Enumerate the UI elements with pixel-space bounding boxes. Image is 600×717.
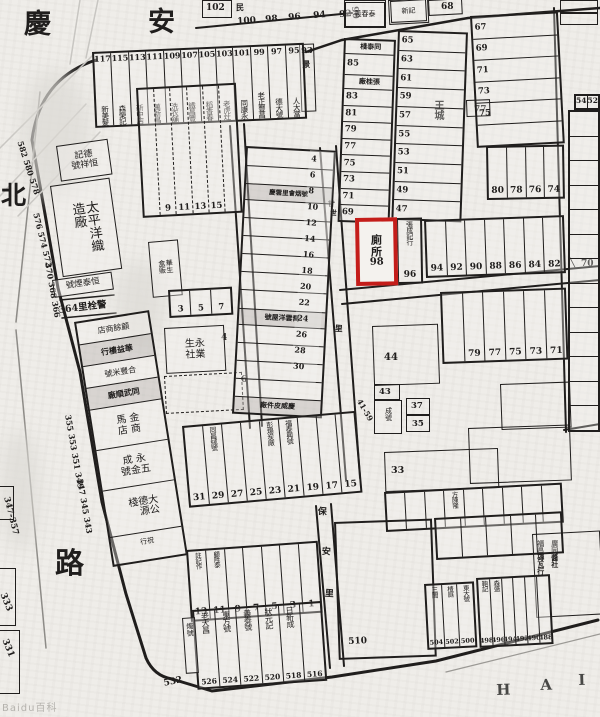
lot-cell: 78 xyxy=(506,147,526,197)
lot-cell: 97 xyxy=(271,47,283,56)
lot-cell: 83 xyxy=(344,88,393,106)
lot-cell: 516 xyxy=(299,603,325,680)
lot-37-box xyxy=(406,398,430,415)
top-lot-smudge: 新記 xyxy=(390,0,427,23)
lane-label-ganshili: 里 xyxy=(334,324,343,333)
lot-cell: 25 xyxy=(250,488,263,499)
lot-cell: 新美髮 xyxy=(101,105,109,125)
shop-name: 華生盒販 xyxy=(157,259,173,278)
lot-cell: 29 xyxy=(212,492,225,503)
lot-cell: 張成記行 xyxy=(406,221,413,245)
lot-cell xyxy=(485,516,512,555)
lot-cell: 79 xyxy=(468,350,481,360)
lot-cell: 92 xyxy=(450,264,463,274)
lot-cell: 7 xyxy=(210,289,232,314)
lot-cell: 74 xyxy=(548,186,561,196)
lot-cell: 103 xyxy=(216,49,233,59)
lot-number: 30 xyxy=(293,361,305,371)
lot-cell: 9 xyxy=(165,204,171,214)
lot-cell: 85 xyxy=(345,53,394,76)
lot-43-box xyxy=(374,384,400,400)
lot-cell: 76 xyxy=(529,186,542,196)
lot-cell xyxy=(570,381,598,406)
lot-cell: 人大當 xyxy=(292,96,300,116)
lot-cell: 方陳隆 xyxy=(450,491,457,508)
lot-number: 26 xyxy=(296,329,308,339)
lane-label-364li: 364里栓警 xyxy=(58,300,107,316)
toilet-lot-number: 98 xyxy=(370,258,384,269)
lot-number: 51 xyxy=(397,167,409,177)
lot-cell xyxy=(570,258,598,283)
lot-number: 49 xyxy=(396,186,408,196)
lot-cell: 526 xyxy=(201,677,217,686)
lot-510-block xyxy=(334,519,437,660)
lot-cell: 53 xyxy=(395,143,462,164)
lot-number: 20 xyxy=(300,281,312,291)
lot-number: 75 xyxy=(343,159,355,169)
lot-cell: 3 xyxy=(178,305,184,315)
lot-cell: 德大號 xyxy=(275,97,283,117)
lot-cell: 彭煬炭廠 xyxy=(265,421,274,446)
street-label-an: 安 xyxy=(148,8,175,38)
lot-number: 57 xyxy=(399,111,411,121)
lot-number: 53 xyxy=(398,148,410,158)
shop-hengtai-tobacco: 號煙泰恒 xyxy=(52,272,114,298)
ne-open-lot xyxy=(500,382,572,430)
lot-number: 81 xyxy=(345,109,357,119)
lot-cell: 76 xyxy=(525,147,545,197)
scanned-block-map: 慶安北路HAI582 580 578576 574 572370 368 366… xyxy=(0,0,600,717)
lot-cell: 101 xyxy=(233,48,250,58)
lot-number: 10 xyxy=(307,202,319,212)
lot-cell: 88 xyxy=(489,262,502,272)
lot-number: 79 xyxy=(345,125,357,135)
lot-cell xyxy=(460,517,487,556)
lot-number: 77 xyxy=(344,142,356,152)
lot-cell: 同昌絨號 xyxy=(209,426,218,451)
lot-cell: 63 xyxy=(399,50,466,71)
lot-glyph: 民 xyxy=(236,3,244,12)
lot-cell: 82 xyxy=(542,217,563,272)
lot-row-526-516: 老大昌526東方號524義泰號522狀元記520日新成518516 xyxy=(192,601,327,690)
lot-row-31-15: 31同昌絨號292725彭煬炭廠23福泰興號21191715 xyxy=(182,411,362,508)
lot-cell: 森榮記 xyxy=(118,104,126,124)
shop-name: 義春泰 xyxy=(355,10,376,18)
lot-cell: 496 xyxy=(492,636,505,644)
watermark: Baidu百科 xyxy=(2,699,57,714)
lot-number: 102 xyxy=(206,4,225,14)
lot-cell xyxy=(478,120,563,146)
lot-cell: 79 xyxy=(462,293,485,362)
lot-cell: 94 xyxy=(431,264,444,274)
lot-cell: 73 xyxy=(341,171,390,189)
lot-cell xyxy=(570,136,598,161)
lot-cell: 21 xyxy=(287,485,300,496)
lot-number: 67 xyxy=(474,23,486,33)
lot-cell xyxy=(570,209,598,234)
lot-cell: 75 xyxy=(503,291,526,360)
lot-number: 8 xyxy=(308,186,314,195)
lot-cell: 51 xyxy=(395,162,462,183)
lot-44-box xyxy=(372,324,440,386)
lot-cell: 張成記行96 xyxy=(398,220,421,282)
street-numbers: 347 345 343 xyxy=(75,478,93,534)
lot-row-504-500: 三閭504楂庭502東大號500 xyxy=(424,581,477,650)
lot-col-85-69: 棧泰同85廠桂張8381797775737169 xyxy=(338,38,396,224)
lot-cell: 17 xyxy=(325,482,338,493)
street-letter-i: I xyxy=(578,672,586,689)
lot-cell: 95 xyxy=(288,46,300,55)
lot-row-94-82: 94929088868482 xyxy=(424,215,566,278)
lot-number: 6 xyxy=(310,170,316,179)
shop-pacific-weaving: 太平洋織造廠 xyxy=(50,178,122,277)
lot-number: 69 xyxy=(476,44,488,54)
lane-label-baoanli: 安 xyxy=(321,548,331,558)
lot-cell: 老正豐昌 xyxy=(257,92,266,118)
lot-cell xyxy=(570,332,598,357)
lot-number: 71 xyxy=(342,192,354,202)
lot-cell: 11 xyxy=(178,203,190,213)
lot-cell xyxy=(570,283,598,308)
lot-cell: 7 xyxy=(218,303,224,313)
lot-row-498-488: 鞄記498森盛496494492490488 xyxy=(476,574,554,648)
shop-shengyong: 生永社業 xyxy=(164,325,226,374)
lot-cell: 94 xyxy=(426,221,446,276)
lot-row-9-15: 9111315 xyxy=(136,83,243,218)
lot-cell: 東方號 xyxy=(221,610,230,632)
lot-cell: 東大號500 xyxy=(456,583,475,646)
shop-name: 廠桂張 xyxy=(346,78,392,88)
shop-name: 店 商 xyxy=(117,423,142,438)
lot-number: 73 xyxy=(478,87,490,97)
shop-name: 號煙泰恒 xyxy=(65,278,100,292)
lot-cell: 86 xyxy=(509,262,522,272)
lot-number: 24 xyxy=(297,313,309,323)
lot-number: 16 xyxy=(303,249,315,259)
lot-number: 100 xyxy=(237,17,256,28)
east-edge-lot-col xyxy=(568,110,600,432)
lot-cell: 鞄記 xyxy=(480,580,487,591)
lot-cell: 488 xyxy=(536,576,551,643)
lot-number: 22 xyxy=(298,297,310,307)
lot-96-zhangchengji: 張成記行96 xyxy=(396,218,423,284)
shop-name: 號祥恒 xyxy=(71,158,99,172)
lot-number: 12 xyxy=(305,218,317,228)
lot-cell: 95人大當 xyxy=(285,45,306,118)
lot-col-65-47: 65636159575553514947 xyxy=(391,30,468,222)
ne-partial-lot xyxy=(560,13,598,25)
shop-name: 廠件皮威慶 xyxy=(260,402,295,412)
lot-cell: 518 xyxy=(286,671,302,680)
shop-name: 廠順武同 xyxy=(107,387,140,401)
lot-cell: 54 xyxy=(576,97,586,105)
lot-number: 71 xyxy=(477,66,489,76)
lot-number: 83 xyxy=(346,92,358,102)
shop-name: 棧泰同 xyxy=(348,43,394,53)
lot-cell: 73 xyxy=(523,290,546,359)
lot-cell: 492 xyxy=(515,635,528,643)
lot-cell: 30 xyxy=(290,357,317,375)
lot-cell: 日新成 xyxy=(285,606,294,628)
lot-35-box xyxy=(406,415,430,432)
lot-cell xyxy=(570,185,598,210)
street-letter-h: H xyxy=(496,682,511,699)
lot-row-80-74: 80787674 xyxy=(486,145,565,200)
lot-cell: 498 xyxy=(480,637,493,645)
lot-cell: 490 xyxy=(527,635,540,643)
lot-cell: 522 xyxy=(243,674,259,683)
lot-cell: 96 xyxy=(404,271,417,281)
lot-cell: 92 xyxy=(445,221,466,276)
lot-cell xyxy=(436,519,462,558)
lot-number: 47 xyxy=(396,205,408,215)
lot-number: 98 xyxy=(265,15,278,26)
lot-cell: 80 xyxy=(488,148,507,198)
lot-cell: 117 xyxy=(94,54,111,64)
lot-cell: 74 xyxy=(543,147,563,197)
lot-cell: 80 xyxy=(491,187,504,197)
lot-cell: 99 xyxy=(253,47,265,56)
lot-number: 73 xyxy=(343,175,355,185)
shop-name: 大公德源棧 xyxy=(125,493,159,523)
lot-cell: 81 xyxy=(343,105,392,123)
lane-label-baoanli: 保 xyxy=(317,508,327,518)
lot-cell: 86 xyxy=(503,219,524,274)
lot-cell: 502 xyxy=(445,638,459,646)
lot-row-3-5-7: 357 xyxy=(168,287,233,318)
lot-cell: 5 xyxy=(198,304,204,314)
lot-number: 63 xyxy=(401,55,413,65)
shop-name: 新記 xyxy=(401,7,415,16)
lot-cell: 494 xyxy=(503,636,516,644)
lot-cell: 狀元記 xyxy=(264,607,273,629)
lot-number: 61 xyxy=(400,74,412,84)
lot-cell: 三閭 xyxy=(430,586,437,597)
lot-number: 69 xyxy=(342,208,354,218)
lot-cell: 107 xyxy=(181,50,198,60)
lot-cell: 顧陞泰 xyxy=(212,551,220,568)
lot-cell: 488 xyxy=(539,634,552,642)
lot-cell: 73 xyxy=(529,348,542,358)
lot-cell: 52 xyxy=(587,96,599,108)
shop-name: 太平洋織造廠 xyxy=(69,200,103,255)
lot-cell: 同康永 xyxy=(240,99,248,119)
lot-cell: 77 xyxy=(482,292,505,361)
lane-label-baoanli: 里 xyxy=(324,590,334,600)
lot-cell xyxy=(570,405,598,430)
lot-cell: 5 xyxy=(189,290,211,315)
lot-cell xyxy=(570,160,598,185)
lot-cell xyxy=(570,112,598,136)
lot-cell xyxy=(570,307,598,332)
lot-cell: 註記作 xyxy=(194,552,202,569)
street-label-lu: 路 xyxy=(55,548,84,580)
street-numbers: 576 574 572 xyxy=(31,212,53,268)
lot-cell: 504 xyxy=(429,639,443,647)
shop-name: 行樓益華 xyxy=(100,343,133,357)
lot-number: 65 xyxy=(401,36,413,46)
lot-cell: 31 xyxy=(193,493,206,504)
lot-cell: 75 xyxy=(341,154,390,172)
lot-cell: 77 xyxy=(489,349,502,359)
lot-cell: 57 xyxy=(397,106,464,127)
lot-cell: 90 xyxy=(464,220,485,275)
shop-deji-hengxiang: 記德號祥恒 xyxy=(56,139,113,182)
shop-name: 燭號 xyxy=(185,622,196,668)
lot-cell xyxy=(570,234,598,259)
lot-cell: 516 xyxy=(307,670,323,679)
lot-cell: 90 xyxy=(470,263,483,273)
lot-cell: 77 xyxy=(342,138,391,156)
lot-cell: 71 xyxy=(340,188,389,206)
lot-cell: 78 xyxy=(510,186,523,196)
shop-name: 號米豐合 xyxy=(104,365,137,379)
lot-number: 68 xyxy=(441,3,454,13)
lot-cell: 27 xyxy=(231,490,244,501)
lot-number: 18 xyxy=(301,265,313,275)
lot-cell: 71 xyxy=(550,347,563,357)
shop-name: 成號 xyxy=(384,407,391,427)
lot-number: 96 xyxy=(288,13,301,24)
shop-name: 社業 xyxy=(185,349,206,362)
lot-cell: 15 xyxy=(210,201,222,211)
street-number: 532 xyxy=(163,676,183,690)
lot-cell: 13 xyxy=(194,202,206,212)
lot-cell: 19 xyxy=(306,483,319,494)
shop-name: 慶雲里會烟號 xyxy=(269,189,308,198)
lot-number: 28 xyxy=(294,345,306,355)
lot-strip-row: 廠件皮威慶 xyxy=(234,396,321,417)
street-label-qing: 慶 xyxy=(24,10,51,40)
street-label-bei: 北 xyxy=(1,182,26,210)
lot-cell: 520 xyxy=(264,673,280,682)
lot-cell: 54 xyxy=(576,96,587,108)
top-lot-smudge: 義春泰 xyxy=(345,2,385,27)
lot-77-box xyxy=(466,99,491,117)
shop-name: 店商餘顧 xyxy=(97,321,130,335)
lot-cell: 88 xyxy=(484,219,505,274)
lot-cell: 森盛 xyxy=(492,580,499,591)
lot-row-54-52: 5452 xyxy=(574,94,600,110)
lot-cell: 115 xyxy=(111,53,128,63)
ne-open-lot xyxy=(468,424,572,484)
lot-cell: 75 xyxy=(509,348,522,358)
lot-cell: 79 xyxy=(343,121,392,139)
lot-cell: 老大昌 xyxy=(200,612,209,634)
lot-cell: 105 xyxy=(198,50,215,60)
lot-number: 14 xyxy=(304,233,316,243)
lot-cell: 71 xyxy=(544,290,567,359)
lot-cell: 55 xyxy=(396,125,463,146)
lot-chengbox: 成號 xyxy=(374,400,402,434)
lot-cell: 49 xyxy=(394,181,461,202)
street-letter-a: A xyxy=(540,677,552,694)
lot-number: 59 xyxy=(399,92,411,102)
lot-number: 85 xyxy=(347,59,359,69)
lot-cell: 65 xyxy=(399,32,466,52)
shop-name: 行祝 xyxy=(140,536,155,546)
map-elements-layer: 慶安北路HAI582 580 578576 574 572370 368 366… xyxy=(0,0,600,717)
lot-cell: 84 xyxy=(523,218,544,273)
lot-row-79-71: 7977757371 xyxy=(440,288,568,364)
lot-number: 4 xyxy=(311,154,317,163)
lot-cell: 113 xyxy=(129,53,146,63)
lot-cell: 15 xyxy=(344,480,357,491)
lot-cell: 111 xyxy=(146,52,163,62)
lot-cell: 84 xyxy=(528,261,541,271)
lot-cell: 59 xyxy=(397,87,464,108)
lot-cell: 東大號 xyxy=(462,585,469,602)
lot-cell: 福泰興號 xyxy=(284,419,293,444)
lot-cell: 義泰號 xyxy=(243,609,252,631)
lot-col-67-75: 6769717375 xyxy=(470,11,565,147)
lot-cell: 500 xyxy=(461,637,475,645)
lot-cell xyxy=(570,356,598,381)
lot-cell: 82 xyxy=(548,260,561,270)
lot-cell: 23 xyxy=(268,487,281,498)
lot-number-range: 41-59 xyxy=(355,398,374,423)
toilet-98-highlight: 廁所98 xyxy=(355,217,398,286)
lot-cell: 109 xyxy=(164,51,181,61)
lot-number: 55 xyxy=(398,130,410,140)
lot-number: 94 xyxy=(313,11,326,22)
lot-cell: 524 xyxy=(222,676,238,685)
lot-cell: 3 xyxy=(170,291,191,316)
lot-cell: 52 xyxy=(588,97,598,105)
lot-cell: 61 xyxy=(398,68,465,89)
ne-partial-lot xyxy=(560,0,598,13)
lot-cell xyxy=(442,293,464,362)
lot-cell: 楂庭 xyxy=(446,586,453,597)
